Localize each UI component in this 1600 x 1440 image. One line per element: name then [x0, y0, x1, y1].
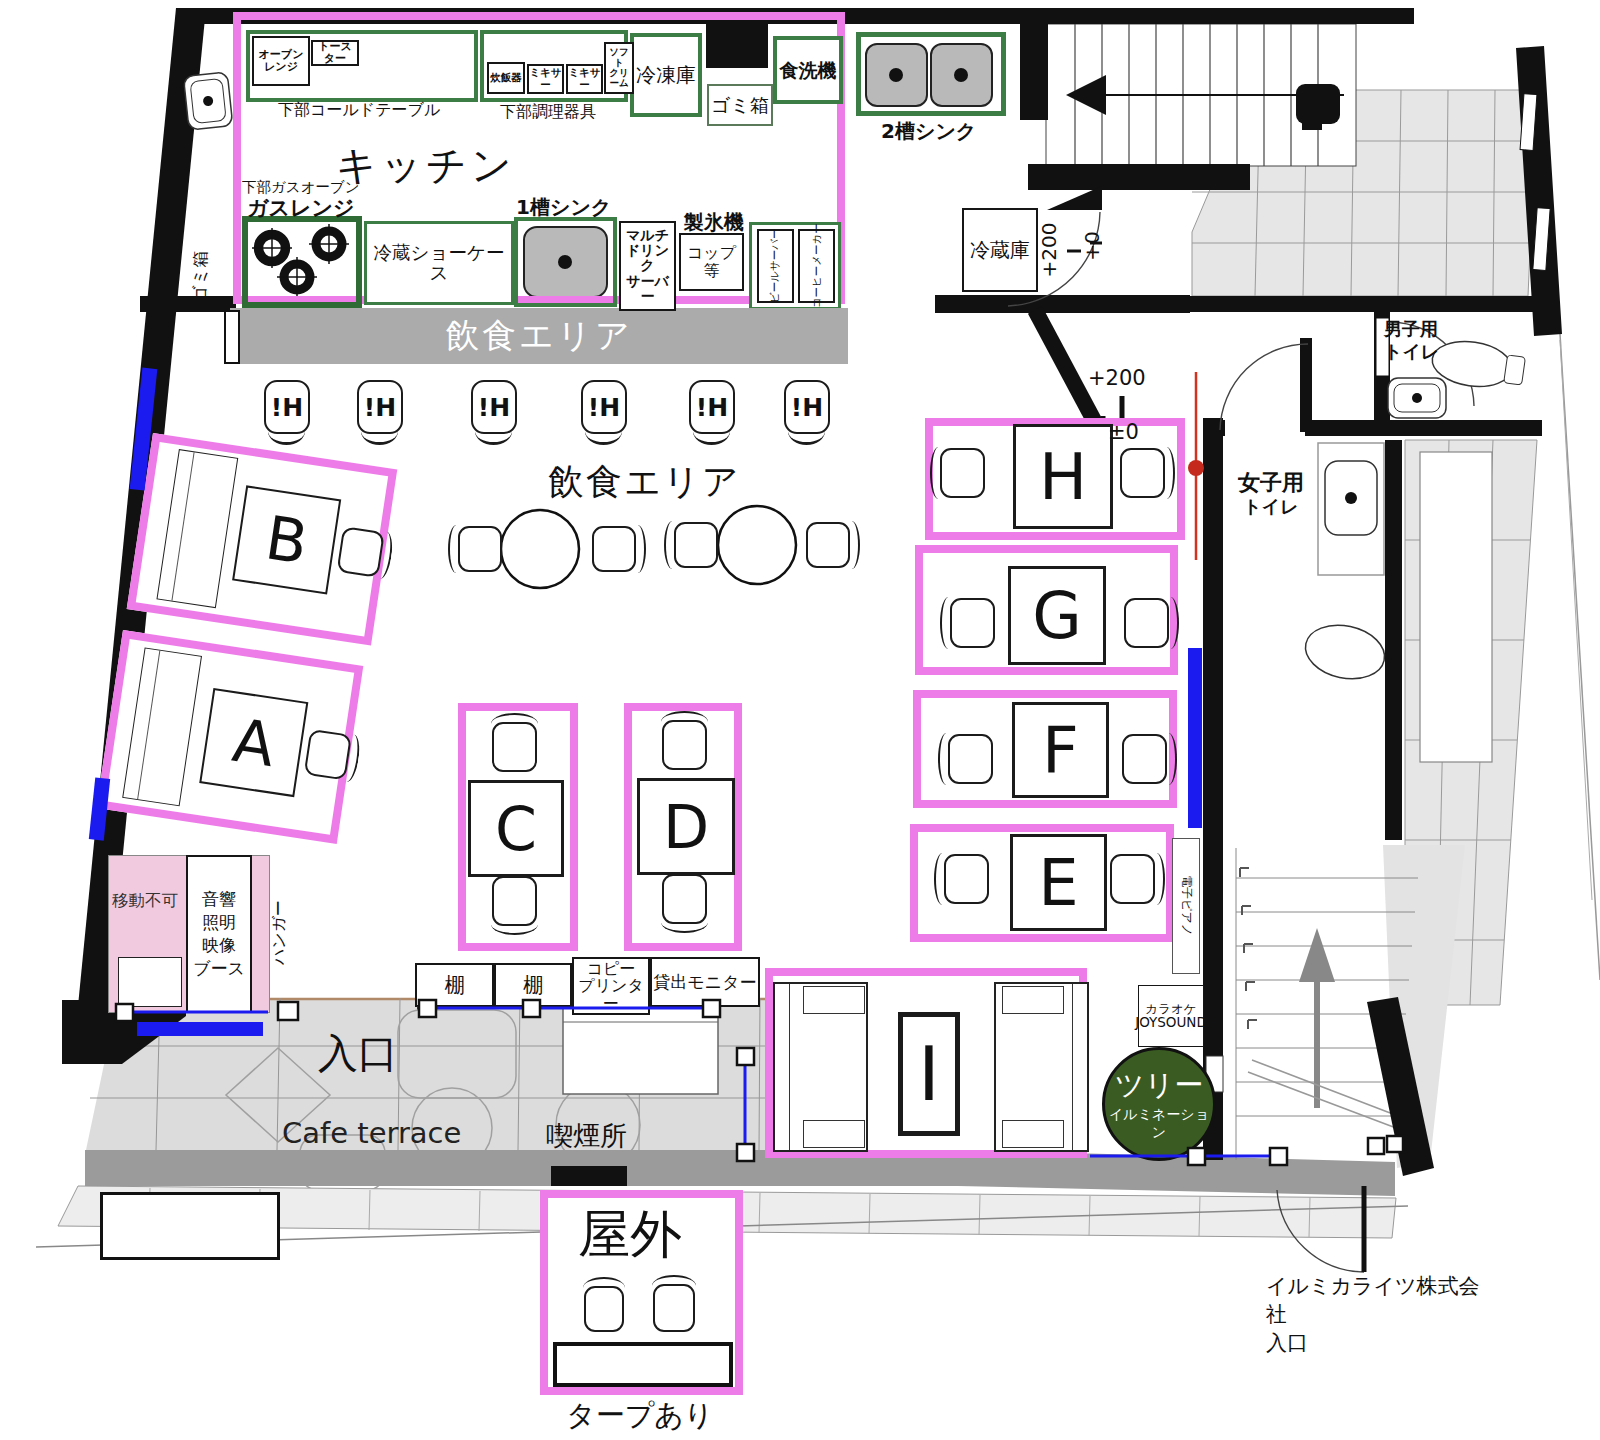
- bench: [994, 982, 1089, 1152]
- level-plus200-door: +200: [1036, 212, 1062, 288]
- beer-server-box: ビールサーバー: [757, 229, 794, 303]
- outside-label: 屋外: [578, 1200, 682, 1270]
- chair: [940, 448, 985, 498]
- bench: [156, 449, 238, 608]
- chair: [806, 522, 850, 568]
- ice-maker-label: 製氷機: [684, 209, 744, 236]
- floor-plan: オーブンレンジ トースター 下部コールドテーブル 炊飯器 ミキサー ミキサー ソ…: [0, 0, 1600, 1440]
- bench: [122, 647, 202, 806]
- bench: [773, 982, 868, 1152]
- booth-sub-box: [118, 957, 182, 1007]
- womens-toilet-label: 女子用 トイレ: [1226, 470, 1316, 518]
- soft-cream-box: ソフトクリーム: [604, 42, 634, 94]
- wall-sink-icon: [183, 72, 232, 130]
- booth-box: 音響照明 映像ブース: [186, 855, 252, 1013]
- double-sink-label: 2槽シンク: [881, 118, 976, 145]
- womens-toilet-icon: [1300, 618, 1389, 685]
- dining-bar-label: 飲食エリア: [445, 313, 632, 359]
- showcase-box: 冷蔵ショーケース: [364, 221, 514, 305]
- table-group-b: B: [127, 433, 398, 646]
- chair: [492, 722, 537, 772]
- pillar: [224, 310, 240, 364]
- coffee-maker-box: コーヒーメーカー: [798, 229, 835, 303]
- round-table-1: [501, 510, 579, 588]
- level-plus0-door: +0: [1080, 220, 1104, 272]
- table-b: B: [232, 485, 341, 594]
- shelf-box-1: 棚: [415, 963, 494, 1007]
- counter-stool-2: !H: [357, 380, 403, 434]
- wall-trash-label: ゴミ箱: [186, 228, 216, 324]
- rice-cooker-box: 炊飯器: [487, 62, 525, 94]
- gas-range-box: [242, 216, 362, 308]
- gas-range-label: ガスレンジ: [247, 194, 354, 222]
- counter-stool-3: !H: [471, 380, 517, 434]
- refrigerator-box: 冷蔵庫: [962, 208, 1038, 292]
- table-c: C: [468, 780, 564, 877]
- copy-printer-box: コピープリンター: [572, 957, 650, 1015]
- chair: [304, 729, 352, 781]
- chair: [662, 874, 707, 924]
- chair: [674, 522, 718, 568]
- chair: [1124, 598, 1169, 648]
- hanger-label: ハンガー: [266, 880, 294, 984]
- chair: [1120, 448, 1165, 498]
- rental-monitor-box: 貸出モニター: [650, 957, 760, 1007]
- chair: [653, 1284, 695, 1332]
- utensils-label: 下部調理器具: [500, 102, 596, 123]
- tarp-note-label: タープあり: [566, 1396, 714, 1436]
- single-sink-label: 1槽シンク: [516, 194, 611, 221]
- chair: [458, 526, 502, 572]
- table-group-a: A: [96, 630, 363, 844]
- double-sink-box: [856, 32, 1006, 116]
- table-i: I: [898, 1012, 960, 1136]
- oven-range-box: オーブンレンジ: [252, 36, 310, 86]
- cups-box: コップ等: [679, 233, 744, 291]
- counter-stool-6: !H: [784, 380, 830, 434]
- counter-stool-5: !H: [689, 380, 735, 434]
- outdoor-planter-box: [100, 1192, 280, 1260]
- table-a: A: [199, 688, 308, 797]
- drink-server-box: マルチドリンクサーバー: [619, 221, 676, 311]
- company-entrance-label: イルミカライツ株式会社入口: [1266, 1272, 1486, 1357]
- level-pm0-hall: ±0: [1108, 420, 1139, 444]
- door-arc-womens-toilet: [1220, 344, 1308, 430]
- mixer-box-1: ミキサー: [527, 64, 564, 94]
- counter-stool-1: !H: [264, 380, 310, 434]
- round-table-2: [718, 506, 796, 584]
- freezer-box: 冷凍庫: [630, 33, 702, 117]
- chair: [1110, 854, 1155, 904]
- chair: [950, 598, 995, 648]
- table-d: D: [637, 778, 735, 875]
- mens-toilet-label: 男子用トイレ: [1384, 318, 1460, 363]
- chair: [1122, 734, 1167, 784]
- table-f: F: [1012, 702, 1109, 798]
- chair: [662, 720, 707, 770]
- tree-illumination: ツリー イルミネーション: [1102, 1047, 1216, 1161]
- entrance-label: 入口: [318, 1026, 398, 1081]
- dining-center-label: 飲食エリア: [548, 458, 741, 507]
- toaster-box: トースター: [311, 40, 359, 66]
- electric-piano-box: 電子ピアノ: [1172, 838, 1200, 974]
- mixer-box-2: ミキサー: [566, 64, 603, 94]
- karaoke-box: カラオケ JOYSOUND: [1138, 985, 1204, 1047]
- kitchen-title: キッチン: [336, 138, 516, 193]
- chair: [492, 876, 537, 926]
- cold-table-label: 下部コールドテーブル: [278, 100, 440, 121]
- level-plus200-hall: +200: [1088, 366, 1146, 390]
- chair: [944, 854, 989, 904]
- table-g: G: [1008, 566, 1106, 665]
- table-h: H: [1013, 424, 1113, 529]
- smoking-area-label: 喫煙所: [546, 1118, 627, 1154]
- table-e: E: [1010, 834, 1107, 931]
- shelf-box-2: 棚: [494, 963, 572, 1007]
- booth-fixed-label: 移動不可: [112, 890, 178, 912]
- womens-toilet-left-wall: [1203, 418, 1223, 1160]
- trash-box: ゴミ箱: [707, 84, 773, 126]
- dishwasher-box: 食洗機: [773, 36, 843, 104]
- dining-bar: 飲食エリア: [230, 308, 848, 364]
- cafe-terrace-label: Cafe terrace: [282, 1116, 461, 1150]
- chair: [948, 734, 993, 784]
- chair: [337, 526, 385, 578]
- chair: [592, 526, 636, 572]
- counter-stool-4: !H: [581, 380, 627, 434]
- outdoor-table: [553, 1342, 733, 1387]
- single-sink-box: [514, 217, 617, 307]
- chair: [584, 1286, 624, 1332]
